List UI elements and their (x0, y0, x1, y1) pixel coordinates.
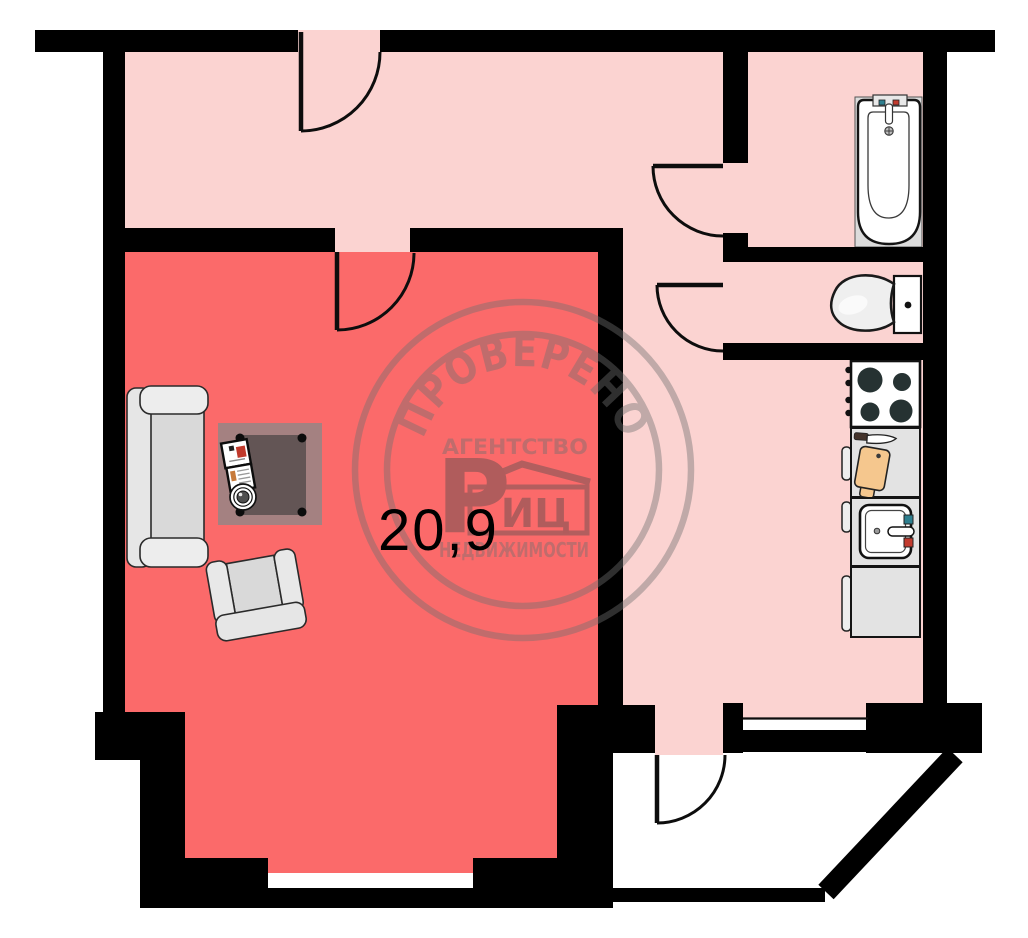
kitchen-cabinet (842, 567, 920, 637)
table-leg (298, 434, 307, 443)
wall-bottom-left (140, 858, 268, 908)
kitchen-units (842, 361, 920, 637)
sofa-armrest-top (140, 386, 208, 414)
wall-left (103, 52, 125, 712)
burner (861, 403, 880, 422)
wall-bay-bottom (268, 888, 473, 908)
balcony-doorway-floor (655, 703, 723, 755)
sink-faucet (888, 527, 914, 536)
sofa-armrest-bottom (140, 538, 208, 567)
sink-tap-cold (904, 515, 913, 524)
wall-hall-bottom (557, 705, 655, 753)
sofa-seat (149, 412, 204, 540)
bath-tap-cold (879, 100, 885, 105)
burner (858, 368, 883, 393)
entrance-doorway-floor (298, 30, 380, 52)
stamp-logo-box-text: ИЦ (501, 491, 572, 537)
wall-top-left (35, 30, 298, 52)
burner (893, 373, 911, 391)
kitchen-window-sill (743, 703, 868, 718)
toilet (831, 275, 921, 333)
coffee-table (218, 423, 322, 525)
table-leg (298, 508, 307, 517)
wall-living-top-left (103, 228, 335, 252)
floor-plan: ПРОВЕРЕНО АГЕНТСТВО Р ИЦ НЕДВИЖИМОСТИ 20… (0, 0, 1028, 938)
wall-kitchen-corner-block (866, 703, 982, 753)
wall-left-step (95, 712, 185, 760)
wall-living-right (598, 228, 623, 707)
cutting-board-counter (842, 428, 920, 500)
balcony-door-icon (657, 755, 725, 823)
wall-bath-stub-lower (723, 233, 748, 262)
wall-window-stub (723, 703, 743, 753)
wall-balcony-bottom (613, 888, 825, 902)
wall-bath-toilet-divider (748, 247, 923, 262)
wall-kitchen-top (723, 343, 923, 360)
wall-under-kitchen-window (743, 730, 868, 752)
sink-tap-hot (904, 538, 913, 547)
wall-living-top-right (410, 228, 623, 252)
wall-balcony-diagonal (826, 755, 955, 892)
burner (890, 400, 913, 423)
sink-drain (874, 528, 880, 534)
wall-top-right (380, 30, 995, 52)
bath-tap-hot (893, 100, 899, 105)
armchair (205, 548, 308, 642)
wall-bottom-right-block (473, 858, 557, 908)
wall-bath-stub-upper (723, 52, 748, 163)
kitchen-sink (842, 498, 920, 566)
toilet-flush-button (905, 302, 912, 309)
sofa (127, 386, 208, 567)
living-room-area-label: 20,9 (378, 498, 499, 563)
cup (230, 484, 256, 510)
wall-balcony-left-column (557, 753, 613, 908)
floor-plan-image: ПРОВЕРЕНО АГЕНТСТВО Р ИЦ НЕДВИЖИМОСТИ 20… (0, 0, 1028, 938)
wall-right (923, 52, 947, 703)
bath-spout (886, 104, 893, 124)
bathtub (855, 95, 922, 247)
stove (845, 361, 920, 427)
